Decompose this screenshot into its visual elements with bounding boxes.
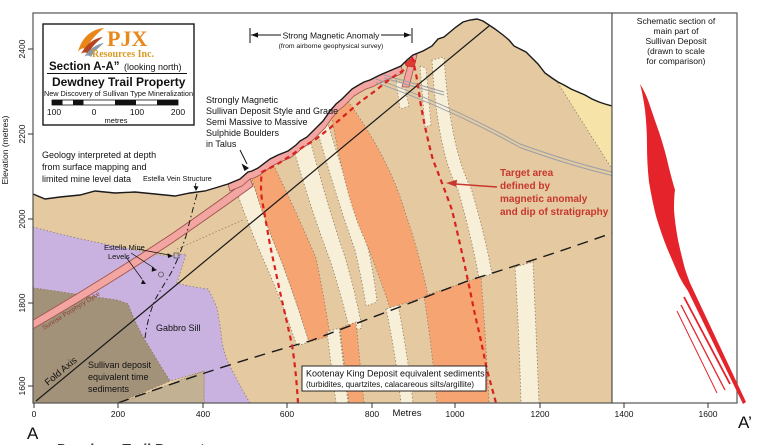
svg-text:Sullivan Deposit Style and Gra: Sullivan Deposit Style and Grade — [206, 106, 338, 116]
svg-text:from surface mapping and: from surface mapping and — [42, 162, 147, 172]
svg-text:New Discovery of Sullivan Type: New Discovery of Sullivan Type Mineraliz… — [44, 89, 193, 98]
svg-text:A’: A’ — [738, 413, 752, 432]
svg-text:1000: 1000 — [446, 409, 465, 419]
svg-text:Dewdney Trail Property: Dewdney Trail Property — [52, 75, 186, 89]
svg-text:limited mine level data: limited mine level data — [42, 174, 131, 184]
svg-text:Target area: Target area — [500, 168, 554, 179]
svg-text:Sullivan deposit: Sullivan deposit — [88, 360, 152, 370]
svg-text:2400: 2400 — [17, 39, 27, 58]
svg-text:in Talus: in Talus — [206, 139, 237, 149]
svg-text:100: 100 — [130, 107, 144, 117]
svg-text:(drawn to scale: (drawn to scale — [647, 46, 705, 56]
svg-text:Estella Vein Structure: Estella Vein Structure — [143, 174, 212, 183]
svg-text:1600: 1600 — [699, 409, 718, 419]
svg-text:equivalent time: equivalent time — [88, 372, 149, 382]
svg-text:for comparison): for comparison) — [646, 56, 705, 66]
svg-text:Strongly Magnetic: Strongly Magnetic — [206, 95, 279, 105]
svg-text:600: 600 — [280, 409, 294, 419]
svg-text:metres: metres — [105, 116, 128, 125]
svg-text:Resources Inc.: Resources Inc. — [92, 49, 155, 60]
svg-text:Strong Magnetic Anomaly: Strong Magnetic Anomaly — [283, 31, 381, 41]
svg-text:Sulphide Boulders: Sulphide Boulders — [206, 128, 280, 138]
svg-text:0: 0 — [92, 107, 97, 117]
svg-text:1200: 1200 — [531, 409, 550, 419]
svg-text:Dewdney Trail Property: Dewdney Trail Property — [57, 441, 213, 445]
svg-text:A: A — [27, 424, 39, 443]
svg-text:400: 400 — [196, 409, 210, 419]
svg-text:and dip of stratigraphy: and dip of stratigraphy — [500, 207, 609, 218]
svg-text:Schematic section of: Schematic section of — [637, 16, 716, 26]
svg-text:Geology interpreted at depth: Geology interpreted at depth — [42, 150, 156, 160]
svg-text:1800: 1800 — [17, 293, 27, 312]
svg-text:defined by: defined by — [500, 181, 550, 192]
svg-text:Section A-A”: Section A-A” — [49, 61, 120, 73]
svg-text:Semi Massive to Massive: Semi Massive to Massive — [206, 117, 308, 127]
svg-text:Levels: Levels — [108, 252, 130, 261]
svg-text:Sullivan Deposit: Sullivan Deposit — [646, 36, 708, 46]
svg-text:main part of: main part of — [654, 26, 700, 36]
svg-text:(looking north): (looking north) — [124, 62, 182, 72]
svg-text:PJX: PJX — [107, 26, 147, 51]
svg-text:magnetic anomaly: magnetic anomaly — [500, 194, 588, 205]
svg-text:100: 100 — [47, 107, 61, 117]
svg-text:Metres: Metres — [392, 408, 421, 419]
svg-text:(turbidites, quartzites, calac: (turbidites, quartzites, calacareous sil… — [306, 380, 474, 389]
svg-text:Gabbro Sill: Gabbro Sill — [156, 323, 201, 333]
svg-text:Kootenay King Deposit equivale: Kootenay King Deposit equivalent sedimen… — [306, 369, 485, 379]
svg-text:1600: 1600 — [17, 376, 27, 395]
svg-text:(from airborne geophysical sur: (from airborne geophysical survey) — [279, 43, 384, 50]
svg-text:1400: 1400 — [615, 409, 634, 419]
svg-text:Elevation (metres): Elevation (metres) — [0, 115, 10, 184]
svg-text:Estella Mine: Estella Mine — [104, 243, 145, 252]
svg-text:sediments: sediments — [88, 384, 130, 394]
svg-text:2000: 2000 — [17, 209, 27, 228]
svg-text:200: 200 — [111, 409, 125, 419]
svg-text:2200: 2200 — [17, 124, 27, 143]
svg-text:200: 200 — [171, 107, 185, 117]
svg-text:800: 800 — [365, 409, 379, 419]
svg-text:0: 0 — [32, 409, 37, 419]
